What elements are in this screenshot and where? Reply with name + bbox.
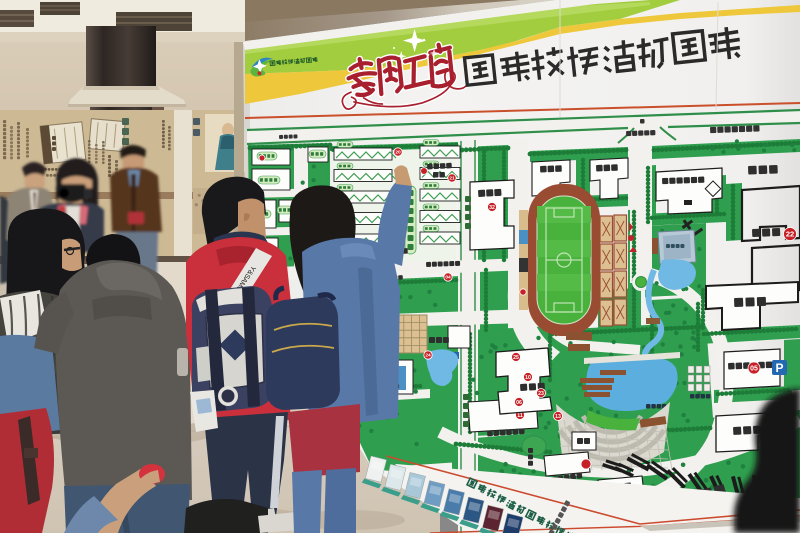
svg-text:06: 06 [516, 400, 522, 406]
svg-text:05: 05 [750, 366, 758, 373]
svg-text:10: 10 [525, 375, 531, 381]
svg-text:22: 22 [786, 230, 794, 239]
svg-text:24: 24 [425, 353, 431, 359]
svg-text:21: 21 [449, 176, 455, 182]
svg-text:20: 20 [395, 150, 401, 156]
svg-text:32: 32 [489, 205, 495, 211]
svg-text:13: 13 [555, 414, 561, 420]
svg-text:04: 04 [445, 275, 451, 281]
svg-text:11: 11 [517, 413, 523, 419]
svg-text:P: P [775, 361, 783, 375]
svg-text:23: 23 [538, 391, 544, 397]
svg-text:25: 25 [513, 355, 519, 361]
